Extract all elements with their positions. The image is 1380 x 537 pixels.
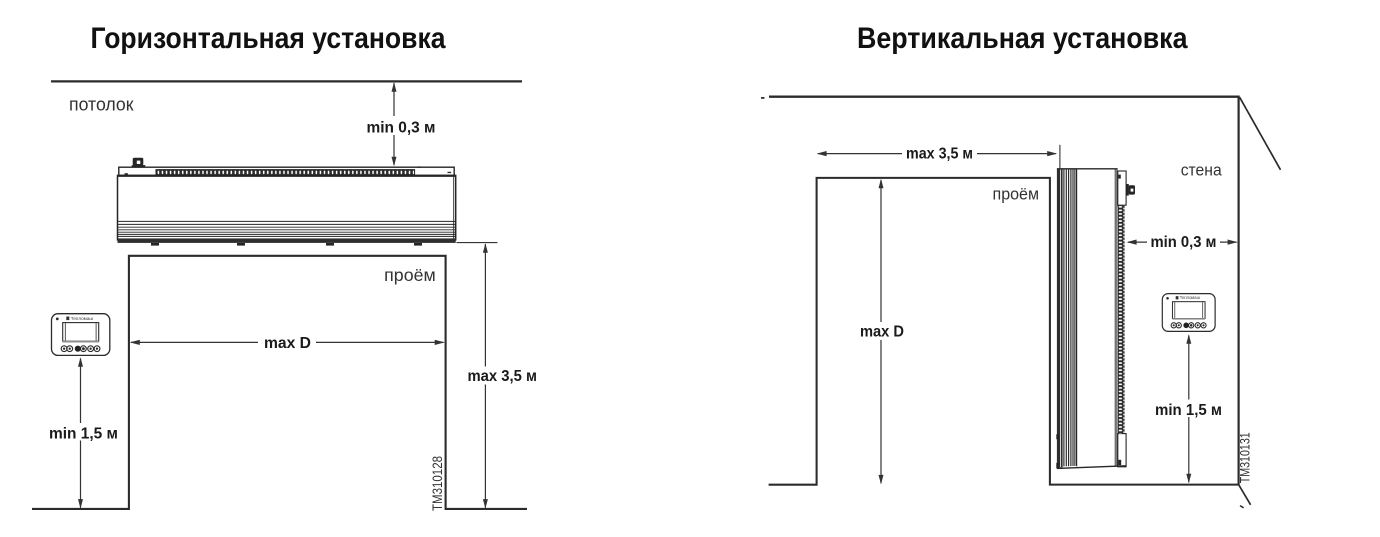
svg-text:потолок: потолок [69,93,134,114]
svg-text:min 1,5 м: min 1,5 м [49,426,118,443]
svg-text:TM310128: TM310128 [430,456,445,511]
svg-text:min 1,5 м: min 1,5 м [1155,402,1222,419]
svg-text:стена: стена [1181,161,1223,179]
svg-text:min 0,3 м: min 0,3 м [1151,234,1217,251]
svg-text:max D: max D [264,335,311,352]
svg-text:max 3,5 м: max 3,5 м [906,146,973,163]
svg-text:max 3,5 м: max 3,5 м [467,368,537,385]
svg-text:Горизонтальная установка: Горизонтальная установка [91,22,446,55]
svg-text:проём: проём [384,265,436,285]
svg-text:Вертикальная установка: Вертикальная установка [857,22,1188,55]
svg-text:TM310131: TM310131 [1238,432,1253,483]
svg-text:max D: max D [860,324,904,341]
svg-text:min 0,3 м: min 0,3 м [367,120,436,137]
svg-text:проём: проём [993,184,1040,203]
